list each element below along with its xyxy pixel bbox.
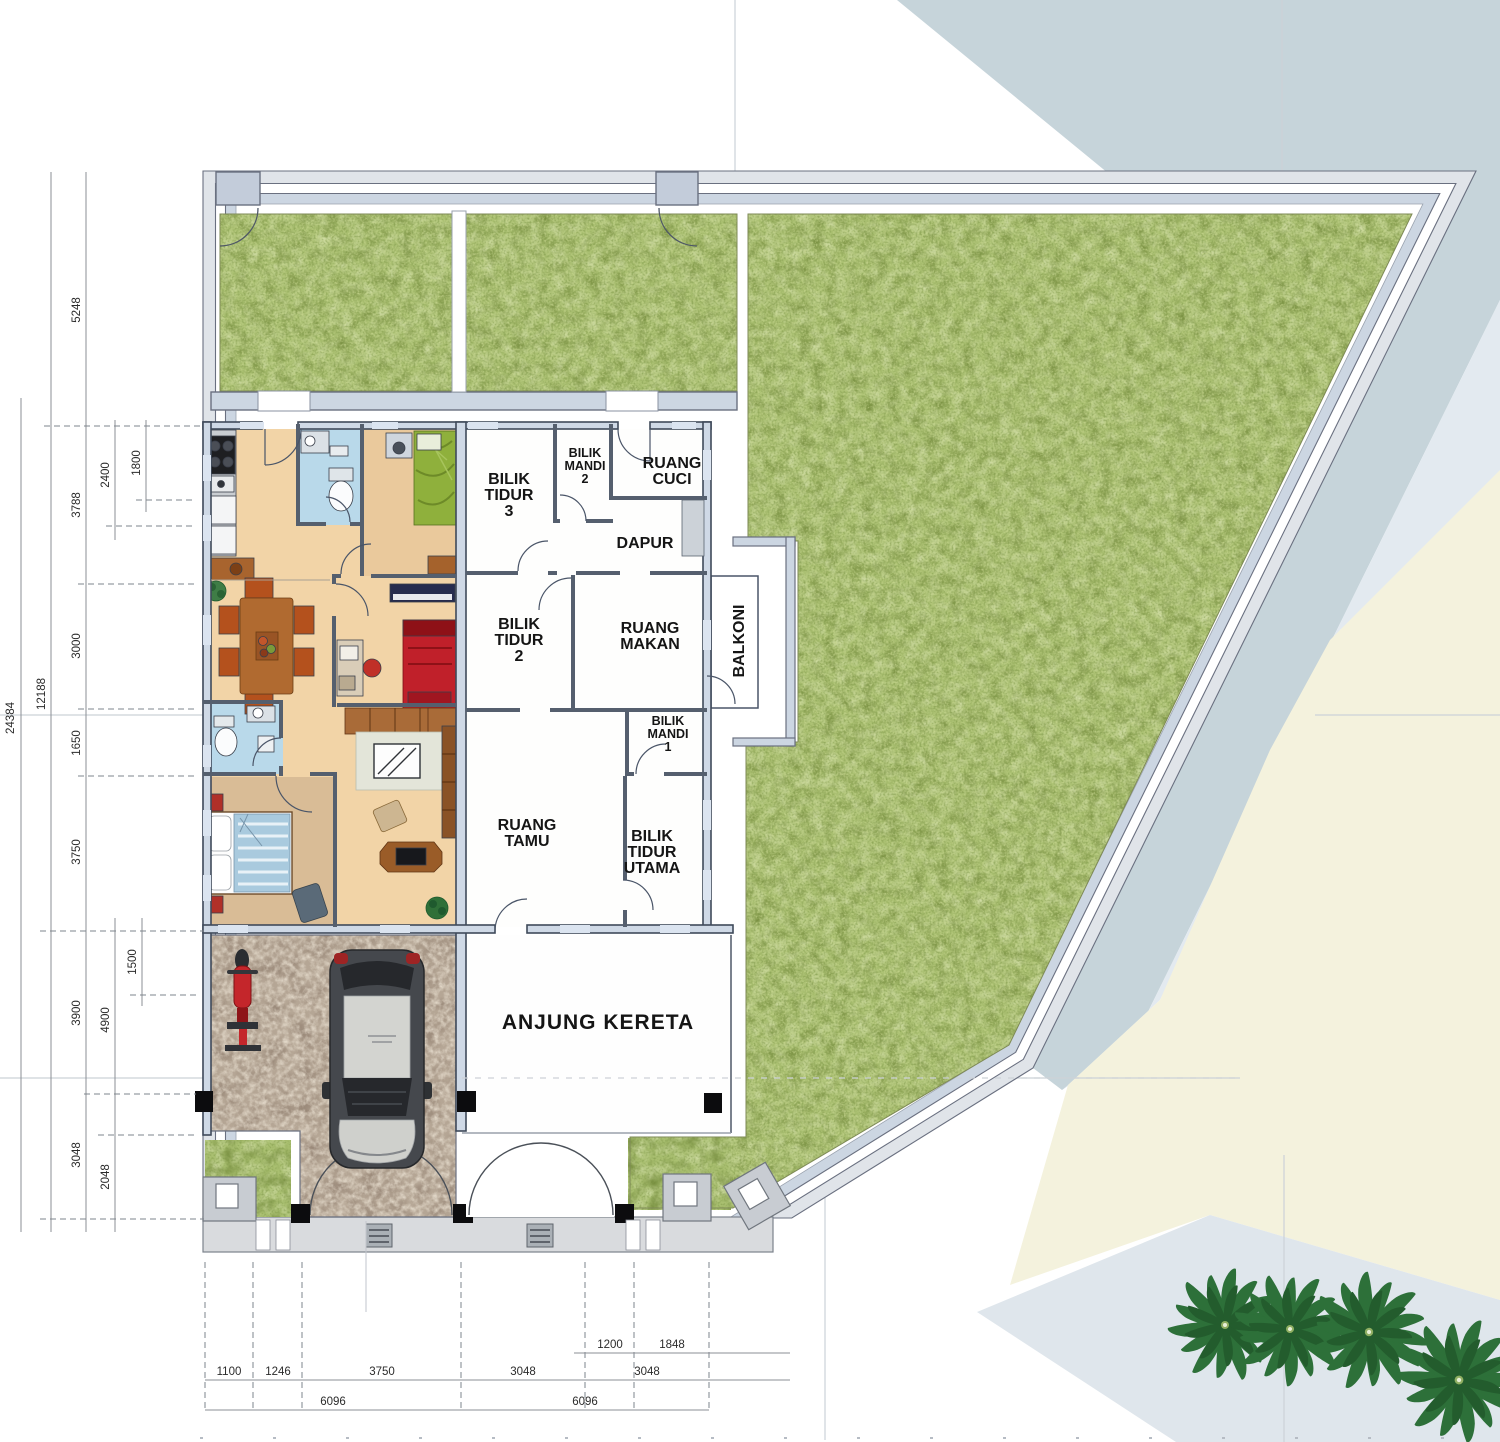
- svg-text:MANDI: MANDI: [565, 459, 606, 473]
- svg-text:TIDUR: TIDUR: [495, 632, 544, 649]
- svg-text:12188: 12188: [36, 678, 48, 710]
- svg-text:1: 1: [665, 740, 672, 754]
- svg-text:2: 2: [515, 648, 524, 665]
- svg-text:RUANG: RUANG: [621, 620, 680, 637]
- svg-text:3900: 3900: [71, 1000, 83, 1026]
- svg-text:1800: 1800: [131, 450, 143, 476]
- svg-text:6096: 6096: [572, 1396, 598, 1408]
- svg-text:4900: 4900: [100, 1007, 112, 1033]
- svg-text:1246: 1246: [265, 1366, 291, 1378]
- svg-text:1100: 1100: [217, 1366, 242, 1378]
- svg-text:1650: 1650: [71, 730, 83, 756]
- svg-text:3750: 3750: [369, 1366, 395, 1378]
- svg-text:BALKONI: BALKONI: [731, 605, 748, 678]
- svg-text:BILIK: BILIK: [631, 828, 673, 845]
- svg-text:DAPUR: DAPUR: [617, 535, 674, 552]
- svg-text:3048: 3048: [510, 1366, 536, 1378]
- svg-text:3788: 3788: [71, 492, 83, 518]
- svg-text:ANJUNG KERETA: ANJUNG KERETA: [502, 1011, 694, 1034]
- svg-text:5248: 5248: [71, 297, 83, 323]
- svg-text:BILIK: BILIK: [652, 714, 685, 728]
- svg-text:BILIK: BILIK: [569, 446, 602, 460]
- svg-text:UTAMA: UTAMA: [624, 860, 681, 877]
- svg-text:2: 2: [582, 472, 589, 486]
- svg-text:2400: 2400: [100, 462, 112, 488]
- svg-text:24384: 24384: [5, 701, 17, 734]
- svg-text:3048: 3048: [71, 1142, 83, 1168]
- svg-text:3750: 3750: [71, 839, 83, 865]
- svg-text:1848: 1848: [659, 1339, 685, 1351]
- svg-text:BILIK: BILIK: [498, 616, 540, 633]
- svg-text:1500: 1500: [127, 949, 139, 975]
- svg-text:2048: 2048: [100, 1164, 112, 1190]
- svg-text:TIDUR: TIDUR: [485, 487, 534, 504]
- svg-text:MAKAN: MAKAN: [620, 636, 680, 653]
- svg-text:3: 3: [505, 503, 514, 520]
- svg-text:CUCI: CUCI: [652, 471, 691, 488]
- svg-text:BILIK: BILIK: [488, 471, 530, 488]
- svg-text:TAMU: TAMU: [504, 833, 549, 850]
- svg-text:RUANG: RUANG: [498, 817, 557, 834]
- svg-text:3048: 3048: [634, 1366, 660, 1378]
- svg-text:MANDI: MANDI: [648, 727, 689, 741]
- svg-text:6096: 6096: [320, 1396, 346, 1408]
- svg-text:RUANG: RUANG: [643, 455, 702, 472]
- svg-text:1200: 1200: [597, 1339, 623, 1351]
- svg-text:3000: 3000: [71, 633, 83, 659]
- svg-text:TIDUR: TIDUR: [628, 844, 677, 861]
